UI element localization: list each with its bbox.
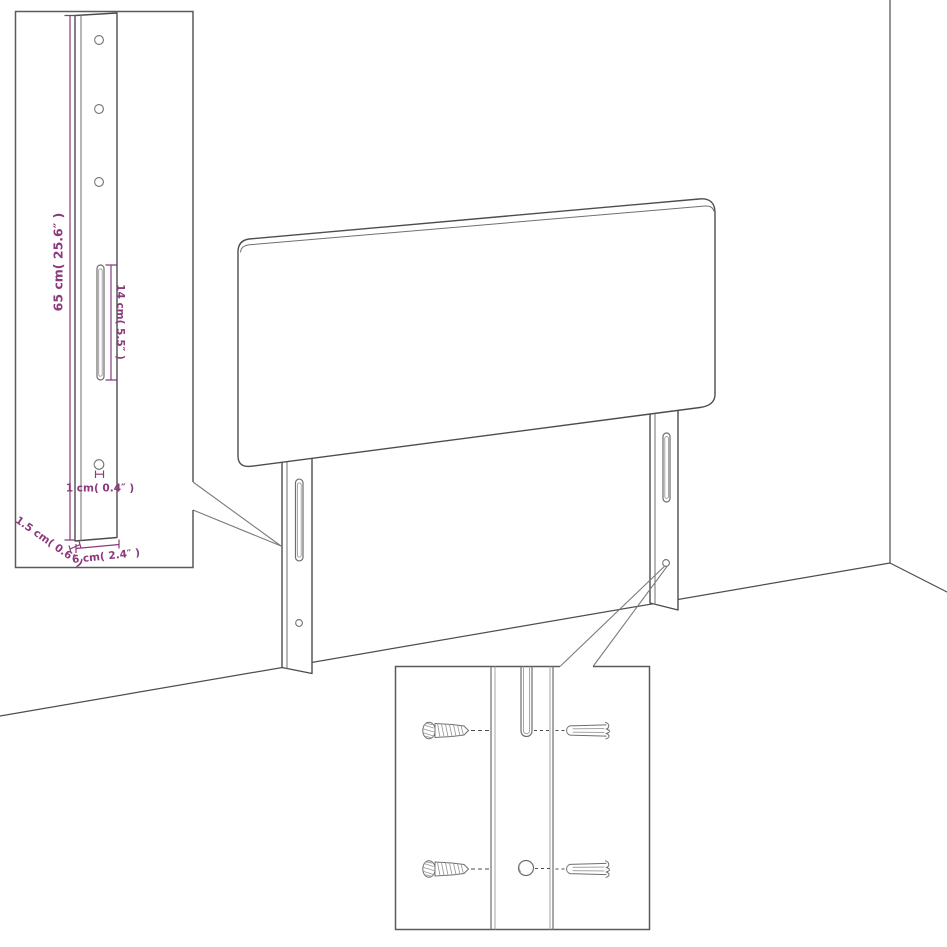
headboard-panel (238, 199, 715, 467)
slot-dimension-label: 14 cm( 5.5″ ) (114, 284, 126, 360)
mounting-inset-background (396, 667, 650, 930)
product-diagram: 65 cm( 25.6″ ) 14 cm( 5.5″ ) 1 cm( 0.4″ … (0, 0, 947, 947)
left-inset-callout-lines (193, 482, 281, 546)
hole-dimension-label: 1 cm( 0.4″ ) (66, 483, 134, 495)
leg-detail-inset: 65 cm( 25.6″ ) 14 cm( 5.5″ ) 1 cm( 0.4″ … (13, 12, 193, 570)
height-dimension-label: 65 cm( 25.6″ ) (51, 213, 66, 312)
right-leg (650, 393, 678, 610)
mounting-detail-inset (396, 667, 650, 930)
floor-line-right (890, 563, 947, 592)
